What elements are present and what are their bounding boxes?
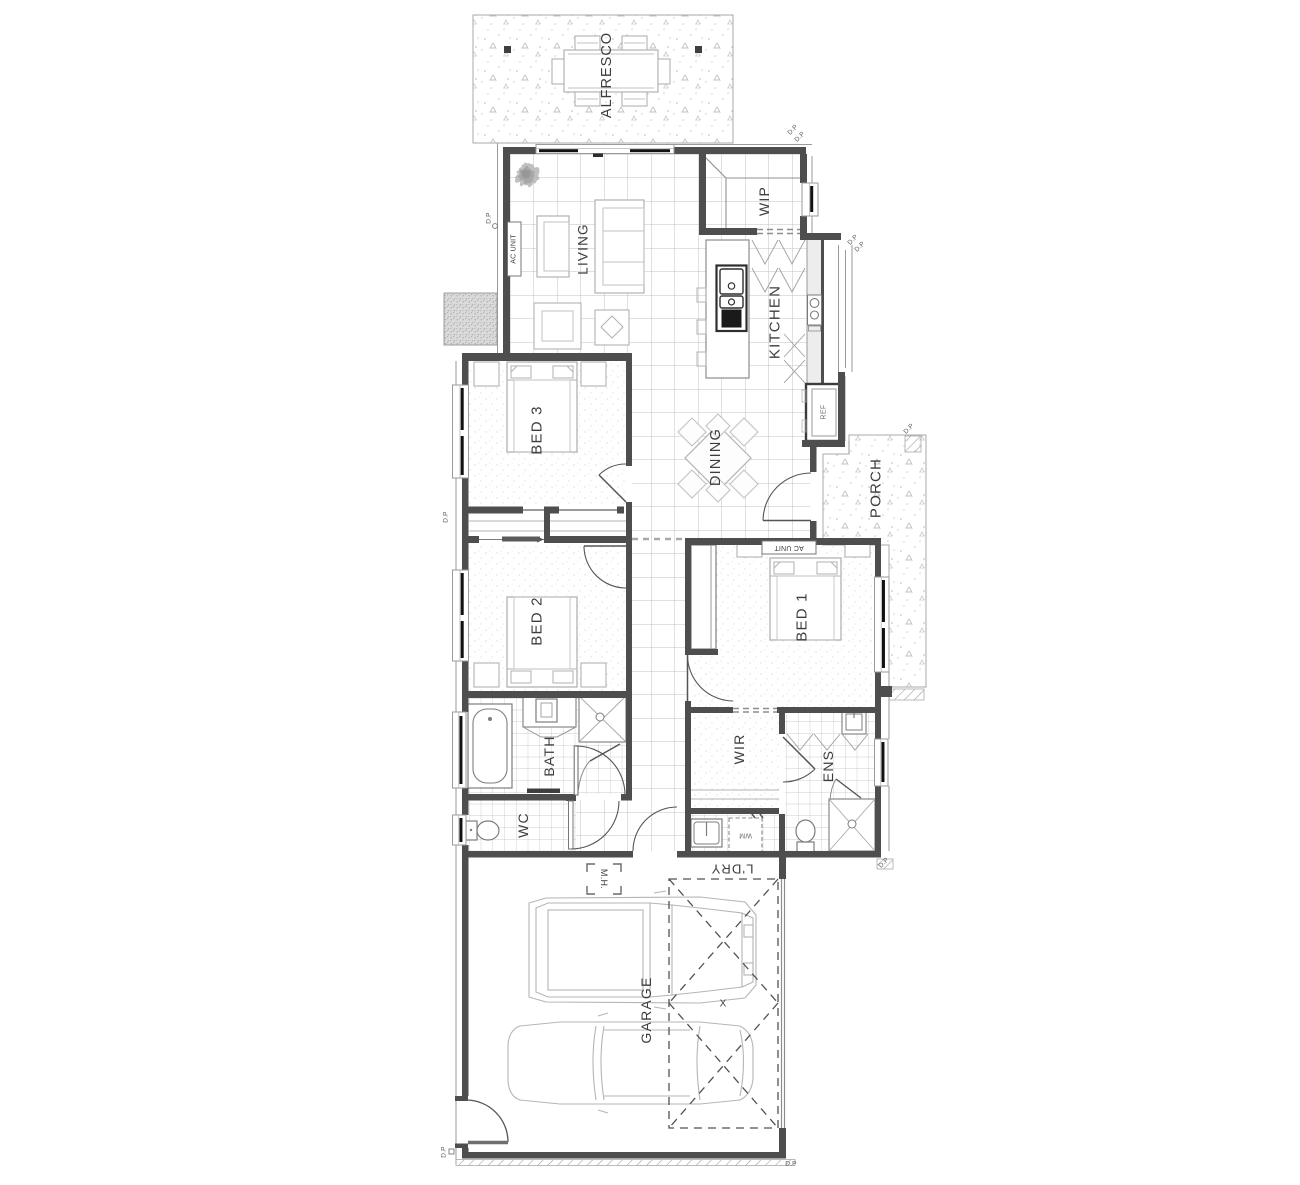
svg-text:WC: WC [515, 812, 531, 838]
svg-text:BED 3: BED 3 [529, 405, 546, 454]
svg-text:L'DRY: L'DRY [711, 862, 754, 877]
svg-text:BED 2: BED 2 [529, 596, 546, 645]
svg-text:GARAGE: GARAGE [638, 976, 654, 1043]
svg-text:X: X [720, 999, 727, 1010]
svg-text:KITCHEN: KITCHEN [767, 285, 784, 359]
svg-text:BED 1: BED 1 [794, 592, 811, 641]
svg-text:PORCH: PORCH [868, 458, 885, 518]
svg-text:WM: WM [739, 832, 752, 839]
svg-text:BATH: BATH [541, 735, 557, 776]
svg-text:D.P: D.P [441, 1146, 448, 1157]
svg-text:D.P: D.P [443, 511, 450, 522]
svg-text:REF: REF [821, 404, 828, 419]
svg-text:WIR: WIR [731, 734, 747, 765]
svg-text:DINING: DINING [708, 428, 724, 486]
svg-text:AC UNIT: AC UNIT [774, 544, 804, 551]
svg-text:M.H.: M.H. [599, 869, 609, 889]
svg-text:AC UNIT: AC UNIT [511, 234, 518, 264]
svg-text:ENS: ENS [820, 750, 836, 782]
svg-text:ALFRESCO: ALFRESCO [599, 32, 615, 118]
svg-text:LIVING: LIVING [576, 223, 591, 274]
svg-text:D.P: D.P [785, 1161, 796, 1168]
svg-text:D.P: D.P [486, 212, 493, 223]
svg-text:WIP: WIP [756, 186, 772, 216]
